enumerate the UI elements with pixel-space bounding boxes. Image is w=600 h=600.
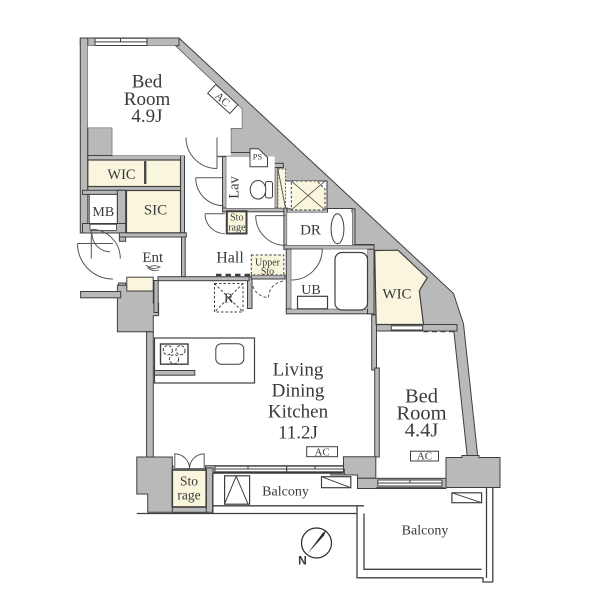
svg-text:Balcony: Balcony — [402, 524, 449, 539]
svg-text:AC: AC — [417, 451, 432, 463]
svg-text:WIC: WIC — [107, 167, 135, 183]
svg-text:Balcony: Balcony — [262, 485, 309, 500]
svg-text:Dining: Dining — [272, 381, 325, 402]
svg-text:N: N — [298, 554, 307, 568]
svg-text:UB: UB — [301, 283, 320, 298]
svg-text:4.4J: 4.4J — [405, 420, 439, 442]
svg-text:Hall: Hall — [216, 250, 244, 267]
svg-text:rage: rage — [177, 488, 200, 503]
svg-text:MB: MB — [92, 205, 114, 220]
svg-text:Living: Living — [273, 360, 324, 381]
svg-text:Sto: Sto — [180, 474, 198, 489]
svg-text:PS: PS — [253, 152, 263, 162]
svg-text:SIC: SIC — [144, 203, 167, 219]
svg-text:rage: rage — [228, 223, 246, 234]
svg-text:R: R — [224, 292, 234, 307]
svg-text:DR: DR — [300, 223, 321, 239]
svg-text:Lav: Lav — [227, 175, 243, 198]
svg-text:4.9J: 4.9J — [131, 106, 162, 127]
svg-text:Kitchen: Kitchen — [268, 402, 329, 423]
svg-text:11.2J: 11.2J — [278, 423, 318, 444]
svg-text:Ent: Ent — [142, 250, 164, 266]
svg-text:WIC: WIC — [382, 287, 411, 303]
svg-text:AC: AC — [314, 446, 329, 458]
svg-text:Sto: Sto — [261, 267, 274, 278]
